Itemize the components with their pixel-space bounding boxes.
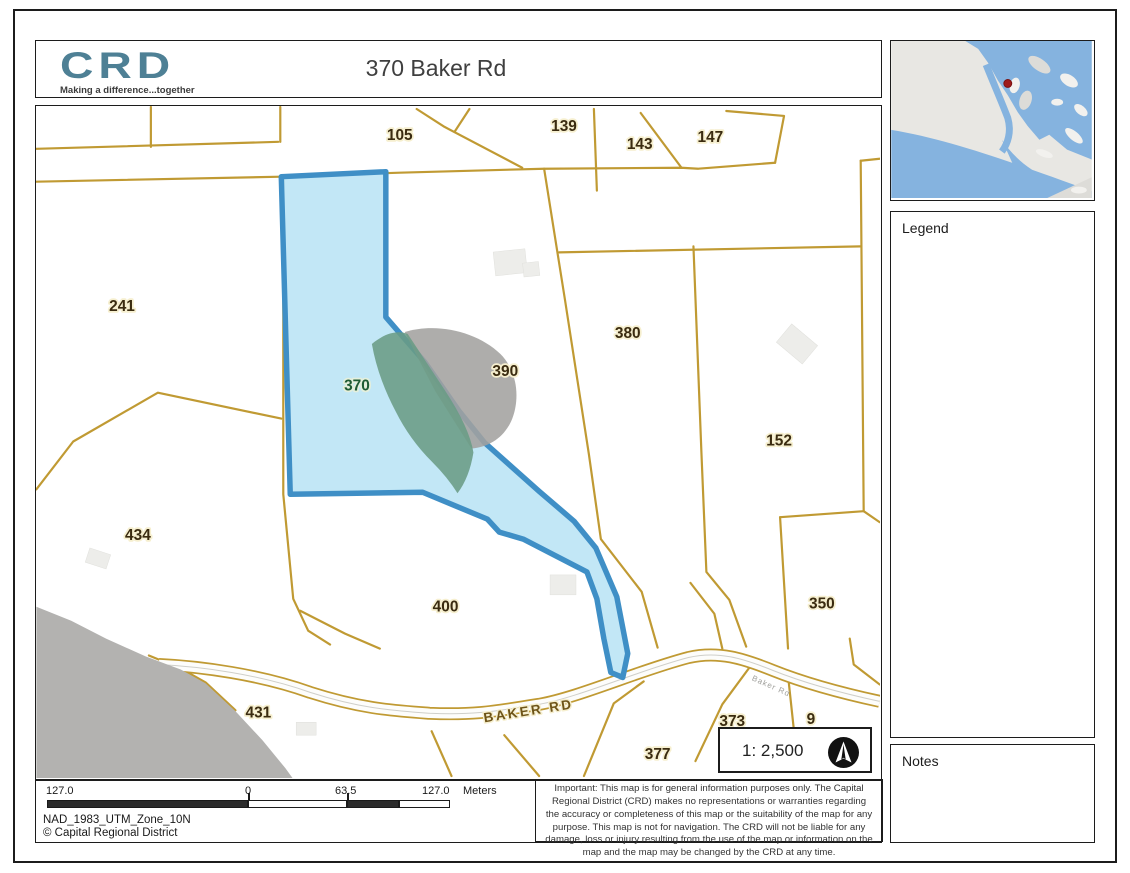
notes-panel: Notes	[890, 744, 1095, 843]
parcel-label: 434	[125, 527, 151, 544]
disclaimer-text: Important: This map is for general infor…	[535, 779, 883, 842]
scalebar-label-left: 127.0	[46, 785, 74, 797]
scalebar-segment	[248, 800, 347, 808]
parcel-label: 152	[766, 432, 792, 449]
scalebar-segment	[47, 800, 248, 808]
copyright-label: © Capital Regional District	[43, 827, 177, 839]
map-canvas: 105 139 143 147 241 380 390 370 152 434 …	[36, 106, 880, 778]
inset-locator-map	[890, 40, 1095, 201]
page-title: 370 Baker Rd	[336, 55, 536, 82]
north-arrow-icon	[827, 736, 860, 769]
parcel-label: 431	[246, 704, 272, 721]
parcel-label: 377	[645, 746, 671, 763]
location-marker	[1004, 80, 1012, 88]
header: CRD Making a difference...together 370 B…	[35, 40, 882, 98]
parcel-label: 241	[109, 298, 135, 315]
scale-indicator: 1: 2,500	[718, 727, 872, 773]
notes-title: Notes	[902, 753, 939, 769]
parcel-label-highlighted: 370	[344, 378, 370, 395]
map-panel: 105 139 143 147 241 380 390 370 152 434 …	[35, 105, 882, 780]
parcel-label: 143	[627, 136, 653, 153]
crd-logo-tagline: Making a difference...together	[60, 85, 195, 96]
crd-logo: CRD Making a difference...together	[60, 47, 195, 96]
parcel-label: 380	[615, 325, 641, 342]
parcel-label: 105	[387, 127, 413, 144]
legend-title: Legend	[902, 220, 949, 236]
datum-label: NAD_1983_UTM_Zone_10N	[43, 814, 191, 826]
footer-strip: 127.0 0 63.5 127.0 Meters NAD_1983_UTM_Z…	[35, 780, 882, 843]
scale-ratio: 1: 2,500	[742, 741, 803, 761]
parcel-label: 400	[433, 599, 459, 616]
scalebar-segment	[399, 800, 450, 808]
parcel-label: 390	[492, 363, 518, 380]
inset-map-canvas	[891, 41, 1092, 198]
legend-panel: Legend	[890, 211, 1095, 738]
scalebar-label-mid: 63.5	[335, 785, 356, 797]
scalebar-label-right: 127.0	[422, 785, 450, 797]
map-sheet: CRD Making a difference...together 370 B…	[0, 0, 1130, 873]
crd-logo-text: CRD	[60, 47, 228, 84]
scalebar-segment	[347, 800, 399, 808]
parcel-label: 147	[698, 129, 724, 146]
parcel-label: 139	[551, 118, 577, 135]
scalebar-units: Meters	[463, 785, 497, 797]
partial-address-label: 9	[807, 711, 816, 728]
shoreline-area	[36, 607, 293, 778]
parcel-label: 350	[809, 596, 835, 613]
